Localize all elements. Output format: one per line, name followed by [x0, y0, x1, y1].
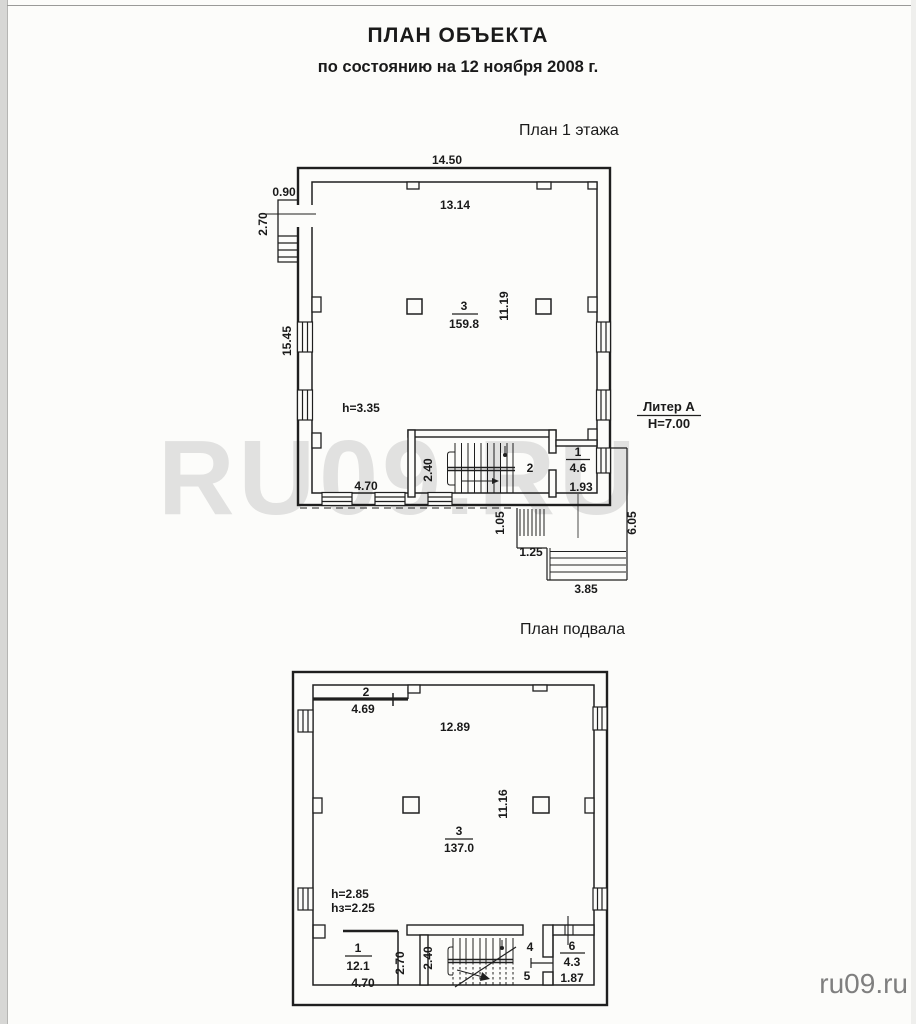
dim-ext-landing-label: 1.25 — [519, 545, 543, 559]
ceiling-height-label: h=3.35 — [342, 401, 380, 415]
dim-stair-width-label: 2.40 — [421, 458, 435, 482]
dim-inner-width-label: 13.14 — [440, 198, 470, 212]
floor1-labels: 14.50 13.14 0.90 2.70 15.45 3 159.8 11.1… — [256, 153, 695, 596]
dim-room1-width-label: 1.93 — [569, 480, 593, 494]
room1-area-label: 4.6 — [570, 461, 587, 475]
basement-staircase — [448, 938, 516, 987]
dim-ext-stair-label: 1.05 — [493, 511, 507, 535]
floor1-porch — [266, 200, 316, 262]
room2-number-label: 2 — [527, 461, 534, 475]
dim-ext-side-label: 6.05 — [625, 511, 639, 535]
room3-number-label: 3 — [461, 299, 468, 313]
dim-top-width-label: 14.50 — [432, 153, 462, 167]
dim-bottom-left-label: 4.70 — [354, 479, 378, 493]
bsmt-dim-corridor-label: 2.70 — [393, 951, 407, 975]
liter-height-label: H=7.00 — [648, 416, 690, 431]
dim-inner-height-label: 11.19 — [497, 291, 511, 321]
liter-name-label: Литер А — [643, 399, 695, 414]
basement-windows — [298, 707, 607, 910]
room1-number-label: 1 — [575, 445, 582, 459]
bsmt-room1-area-label: 12.1 — [346, 959, 370, 973]
floor1-staircase — [447, 443, 515, 493]
bsmt-room6-number-label: 6 — [569, 939, 576, 953]
dim-ext-steps-label: 3.85 — [574, 582, 598, 596]
bsmt-dim-inner-height-label: 11.16 — [496, 789, 510, 819]
floor1-walls — [298, 168, 610, 505]
bsmt-room1-number-label: 1 — [355, 941, 362, 955]
bsmt-dim-stair-width-label: 2.40 — [421, 946, 435, 970]
bsmt-room2-number-label: 2 — [363, 685, 370, 699]
bsmt-room4-number-label: 4 — [527, 940, 534, 954]
dim-porch-depth-label: 2.70 — [256, 212, 270, 236]
bsmt-dim-room2-width-label: 4.69 — [351, 702, 375, 716]
room3-area-label: 159.8 — [449, 317, 479, 331]
bsmt-dim-inner-width-label: 12.89 — [440, 720, 470, 734]
floorplan-drawing: 14.50 13.14 0.90 2.70 15.45 3 159.8 11.1… — [0, 0, 916, 1024]
bsmt-dim-room6-width-label: 1.87 — [560, 971, 584, 985]
dim-porch-width-label: 0.90 — [272, 185, 296, 199]
bsmt-ceiling-height-label: h=2.85 — [331, 887, 369, 901]
bsmt-dim-room1-width-label: 4.70 — [351, 976, 375, 990]
dim-left-height-label: 15.45 — [280, 326, 294, 356]
bsmt-room6-area-label: 4.3 — [564, 955, 581, 969]
scanned-floor-plan-page: RU09.RU ПЛАН ОБЪЕКТА по состоянию на 12 … — [0, 0, 916, 1024]
bsmt-floor-height-label: hз=2.25 — [331, 901, 375, 915]
site-credit: ru09.ru — [819, 968, 908, 1000]
bsmt-room3-number-label: 3 — [456, 824, 463, 838]
bsmt-room3-area-label: 137.0 — [444, 841, 474, 855]
bsmt-room5-number-label: 5 — [524, 969, 531, 983]
